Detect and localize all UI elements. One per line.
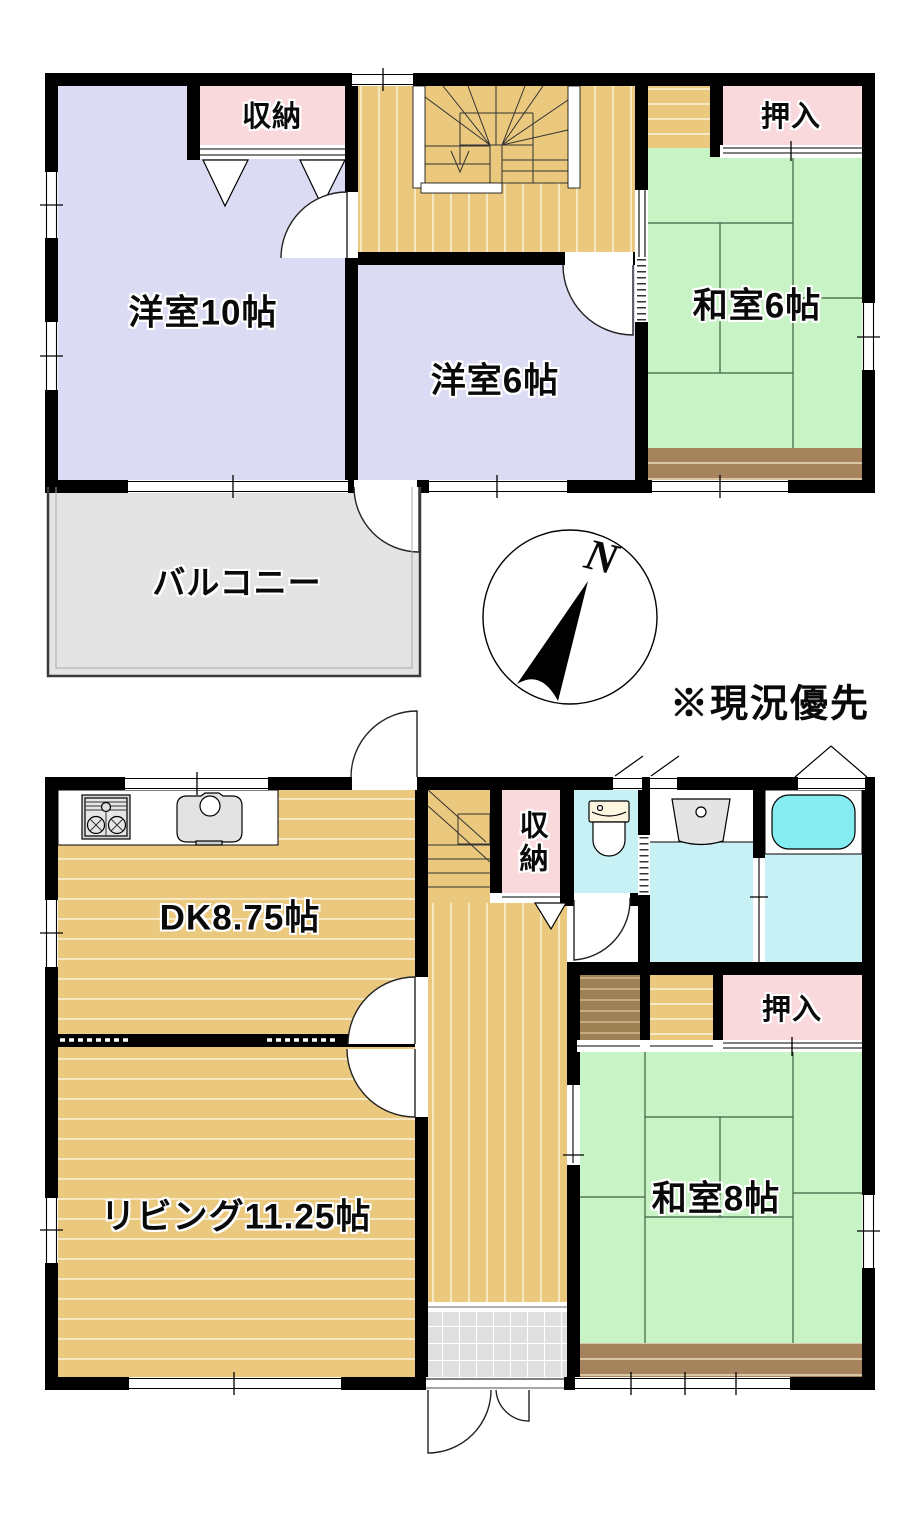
label-balcony: バルコニー: [152, 556, 321, 604]
label-washitsu8: 和室8帖: [652, 1171, 780, 1222]
label-living: リビング11.25帖: [101, 1189, 372, 1240]
front-door-icon: [428, 1390, 529, 1453]
tokonoma-board: [577, 975, 640, 1040]
washbasin-icon: [650, 790, 753, 845]
floorplan-page: 洋室10帖 収納 押入 和室6帖 洋室6帖 バルコニー DK8.75帖 収納 押…: [0, 0, 918, 1524]
engawa-2f: [648, 448, 862, 480]
wood-strip-1f: [650, 975, 713, 1040]
floorplan-drawing: [0, 0, 918, 1524]
compass-icon: [483, 530, 657, 704]
stairs-1f-floor: [428, 782, 490, 903]
entrance-tile: [428, 1312, 567, 1377]
label-dk: DK8.75帖: [160, 890, 321, 941]
engawa-1f: [577, 1343, 862, 1377]
gas-stove-icon: [82, 795, 130, 839]
label-shuno-2f: 収納: [242, 93, 302, 135]
label-oshiire-2f: 押入: [761, 93, 821, 135]
hall-1f: [428, 903, 567, 1302]
label-shuno-1f: 収納: [510, 810, 552, 876]
toilet-icon: [589, 801, 629, 856]
label-yoshitsu10: 洋室10帖: [129, 285, 278, 336]
vent-window-marks: [615, 746, 867, 777]
wood-strip-2f: [648, 86, 710, 148]
label-yoshitsu6: 洋室6帖: [431, 353, 559, 404]
floor1-rooms: [58, 782, 862, 1377]
kitchen-sink-icon: [177, 793, 242, 845]
label-oshiire-1f: 押入: [762, 986, 822, 1028]
staircase-2f-icon: [413, 86, 580, 193]
bathtub-icon: [765, 790, 862, 854]
annotation-text: ※現況優先: [670, 673, 870, 728]
bay-window-mark: [795, 746, 867, 777]
label-washitsu6: 和室6帖: [693, 278, 821, 329]
kitchen-counter: [58, 790, 278, 845]
